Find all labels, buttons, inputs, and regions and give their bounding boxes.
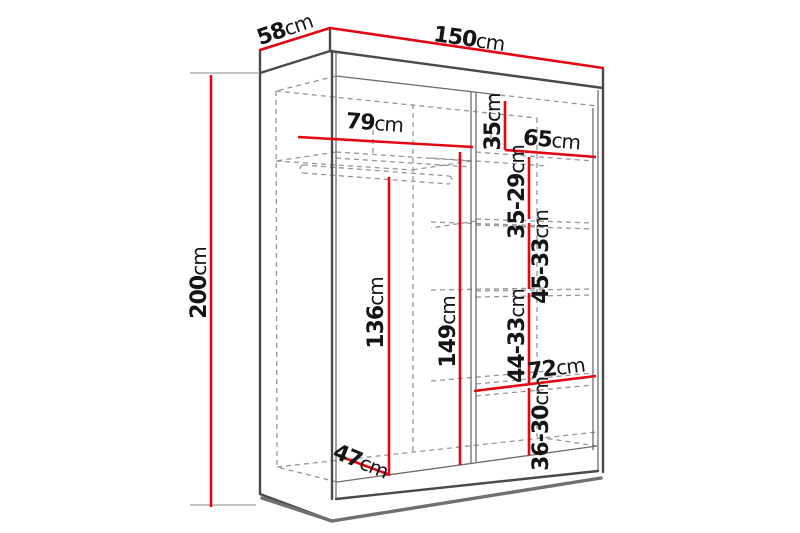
dim-label-150cm: 150cm — [432, 22, 506, 57]
rail-left-cap — [300, 165, 303, 173]
dim-label-44-33cm: 44-33cm — [505, 289, 530, 383]
dim-line-79cm — [298, 137, 473, 147]
plinth-shadow-left — [262, 498, 332, 521]
dim-label-65cm: 65cm — [522, 126, 581, 156]
dim-label-200cm: 200cm — [187, 247, 212, 318]
diagram-canvas: 58cm150cm200cm79cm35cm65cm35-29cm45-33cm… — [0, 0, 800, 533]
dim-label-136cm: 136cm — [364, 277, 389, 348]
dim-label-35-29cm: 35-29cm — [505, 145, 530, 239]
dim-label-58cm: 58cm — [254, 9, 316, 51]
wardrobe-dimension-diagram: 58cm150cm200cm79cm35cm65cm35-29cm45-33cm… — [0, 0, 800, 533]
ceiling-front-edge-hidden — [500, 95, 597, 106]
back-wall-left-corner — [276, 91, 277, 467]
dim-label-47cm: 47cm — [329, 440, 391, 485]
floor-left-depth-edge — [277, 467, 337, 482]
dimension-labels: 58cm150cm200cm79cm35cm65cm35-29cm45-33cm… — [187, 9, 586, 485]
rail-right-cap — [449, 176, 452, 184]
dim-label-45-33cm: 45-33cm — [529, 210, 554, 304]
left-top-shelf-right-depth — [412, 161, 471, 170]
dim-label-149cm: 149cm — [436, 296, 461, 367]
top-panel-bottom-edge — [260, 51, 603, 88]
left-top-shelf-left-depth — [276, 152, 336, 161]
rail-bottom-edge — [303, 173, 449, 184]
dim-label-36-30cm: 36-30cm — [529, 377, 554, 471]
dim-label-35cm: 35cm — [481, 93, 506, 150]
ceiling-left-depth-edge — [276, 76, 336, 91]
shelf-1-left-depth — [431, 221, 476, 228]
dim-label-79cm: 79cm — [345, 109, 404, 138]
